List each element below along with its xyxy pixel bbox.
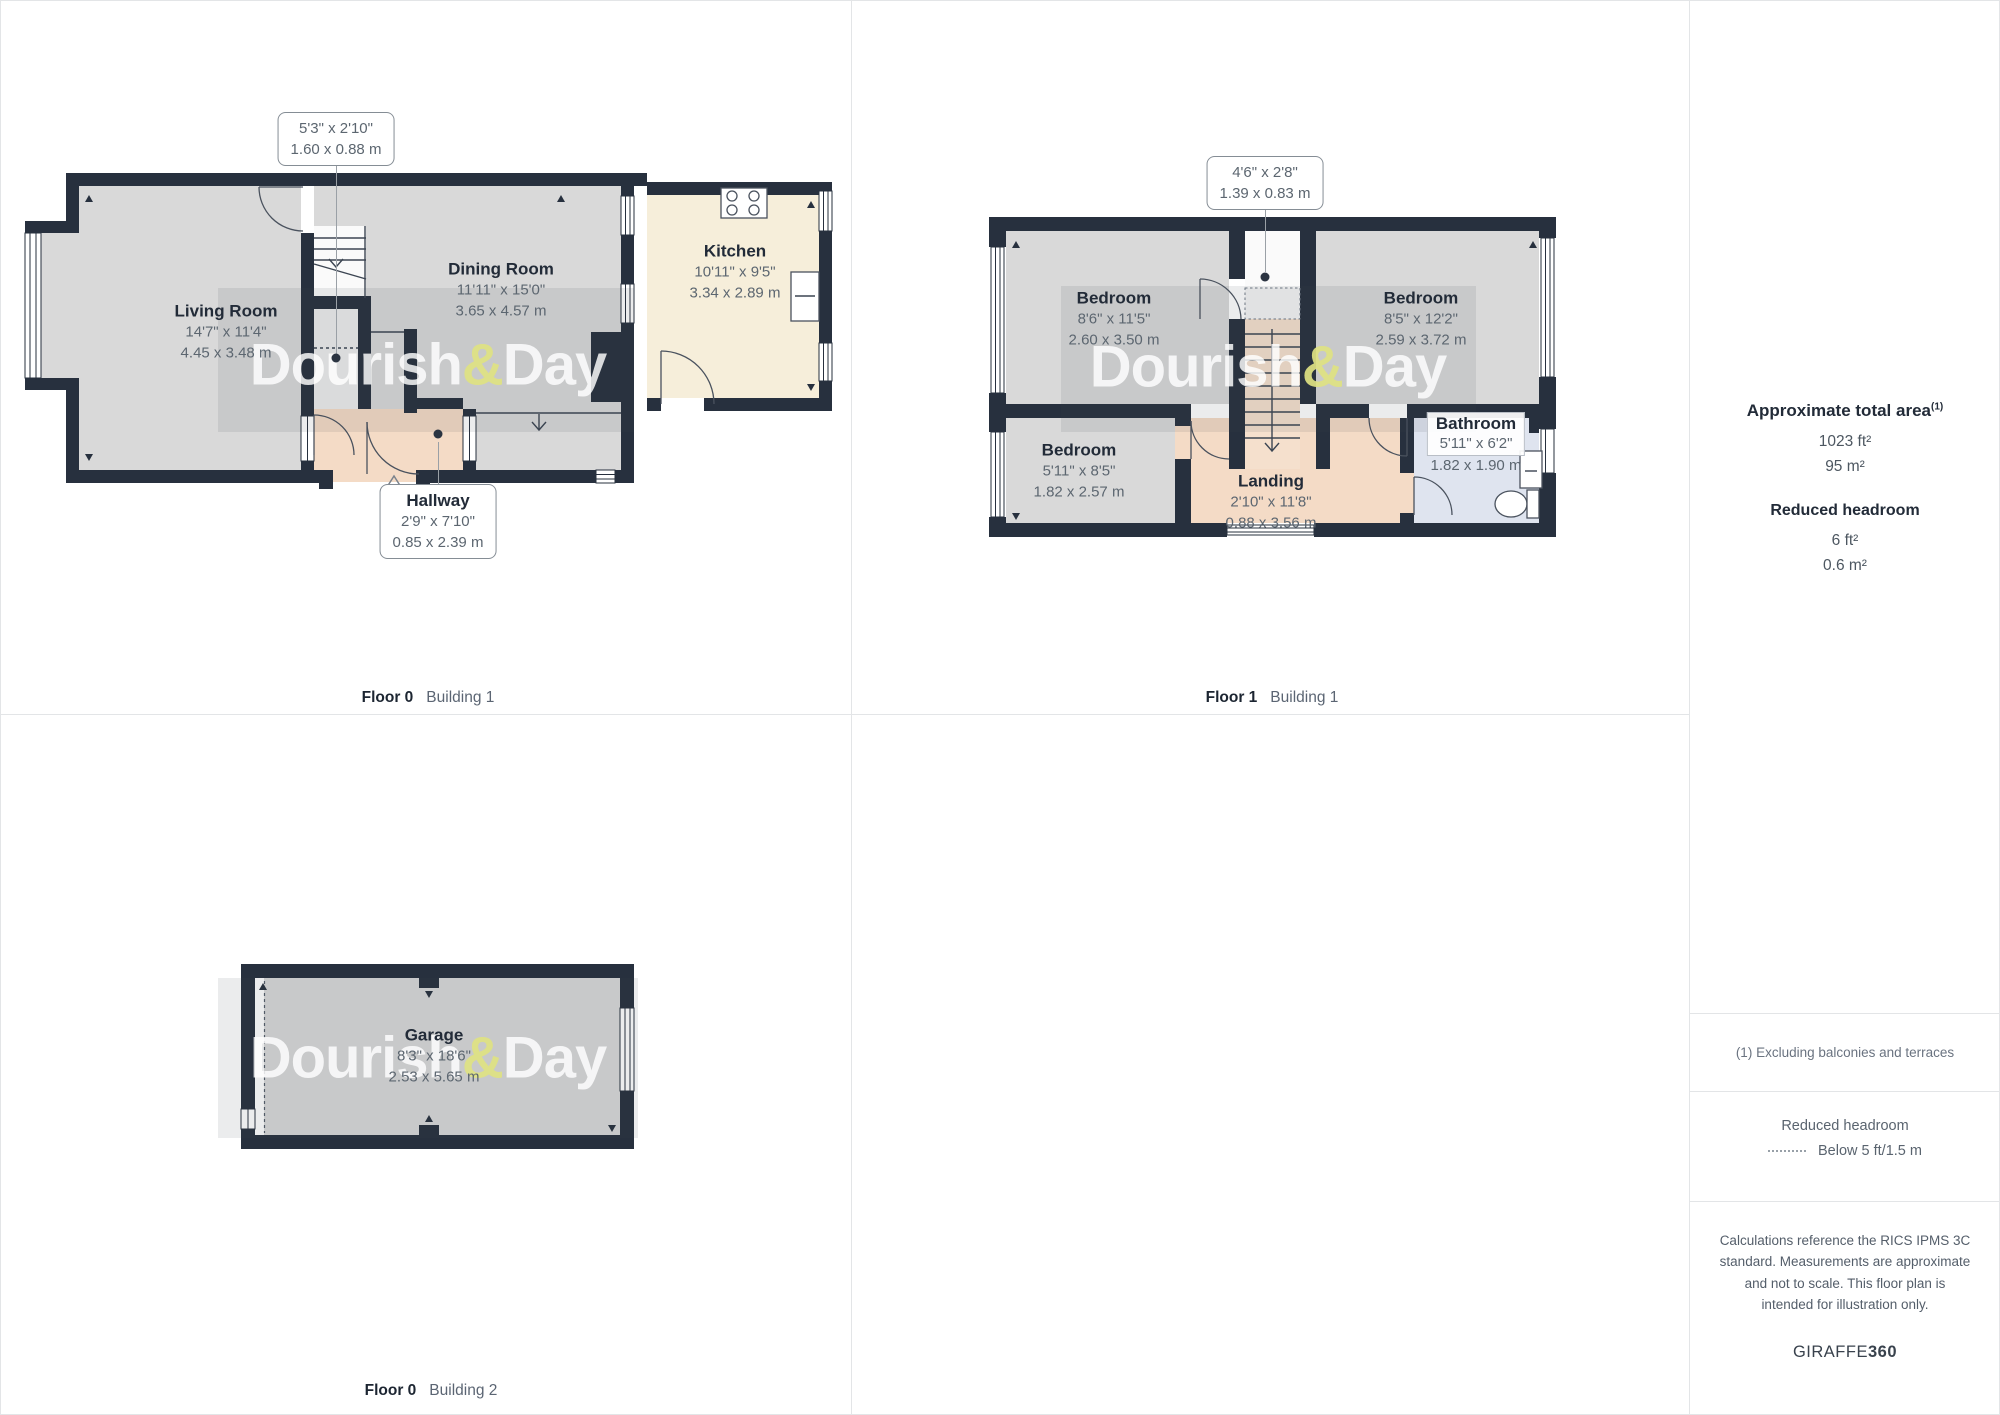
reduced-headroom-heading: Reduced headroom (1689, 502, 2000, 520)
room-label-bedroom2: Bedroom 8'5" x 12'2" 2.59 x 3.72 m (1376, 288, 1467, 351)
room-label-living-room: Living Room 14'7" x 11'4" 4.45 x 3.48 m (175, 301, 278, 364)
room-label-dining-room: Dining Room 11'11" x 15'0" 3.65 x 4.57 m (448, 259, 554, 322)
summary-sidebar: Approximate total area(1) 1023 ft² 95 m²… (1689, 1, 2000, 1415)
footnote: (1) Excluding balconies and terraces (1689, 1014, 2000, 1091)
total-area-block: Approximate total area(1) 1023 ft² 95 m²… (1689, 401, 2000, 582)
disclaimer-block: Calculations reference the RICS IPMS 3C … (1689, 1202, 2000, 1362)
caption-floor1-building1: Floor 1 Building 1 (1206, 689, 1339, 707)
callout-overstairs-cupboard: 4'6" x 2'8" 1.39 x 0.83 m (1207, 156, 1324, 210)
callout-hallway: Hallway 2'9" x 7'10" 0.85 x 2.39 m (380, 484, 497, 559)
leader-dot (332, 354, 341, 363)
leader-line (1265, 208, 1266, 272)
leader-line (336, 164, 337, 354)
giraffe360-logo: GIRAFFE360 (1689, 1343, 2000, 1362)
room-label-landing: Landing 2'10" x 11'8" 0.88 x 3.56 m (1226, 471, 1317, 534)
leader-line (438, 442, 439, 484)
divider (1689, 1013, 2000, 1014)
divider (851, 1, 852, 1415)
legend-block: Reduced headroom Below 5 ft/1.5 m (1689, 1092, 2000, 1201)
bay-window-recess (41, 233, 79, 378)
leader-dot (1261, 273, 1270, 282)
stair-head-area (1245, 231, 1300, 288)
watermark-logo: Dourish&Day (250, 332, 606, 399)
toilet-icon (1495, 491, 1527, 517)
leader-dot (434, 430, 443, 439)
disclaimer-text: Calculations reference the RICS IPMS 3C … (1718, 1230, 1972, 1315)
divider (1689, 1, 1690, 1415)
reduced-headroom-metric: 0.6 m² (1689, 557, 2000, 575)
legend-title: Reduced headroom (1689, 1118, 2000, 1134)
floorplan-document: Dourish&Day Dourish&Day Dourish&Day Livi… (0, 0, 2000, 1415)
caption-floor0-building2: Floor 0 Building 2 (365, 1382, 498, 1400)
legend-row: Below 5 ft/1.5 m (1689, 1143, 2000, 1159)
divider (1689, 1091, 2000, 1092)
room-label-garage: Garage 8'3" x 18'6" 2.53 x 5.65 m (389, 1025, 480, 1088)
room-label-bathroom: Bathroom 5'11" x 6'2" 1.82 x 1.90 m (1427, 412, 1525, 476)
divider (1, 714, 1689, 715)
total-area-heading: Approximate total area(1) (1689, 401, 2000, 421)
reduced-headroom-dashed-line-icon (1768, 1150, 1806, 1152)
total-area-imperial: 1023 ft² (1689, 433, 2000, 451)
total-area-metric: 95 m² (1689, 458, 2000, 476)
callout-understairs-cupboard: 5'3" x 2'10" 1.60 x 0.88 m (278, 112, 395, 166)
room-label-kitchen: Kitchen 10'11" x 9'5" 3.34 x 2.89 m (690, 241, 781, 304)
reduced-headroom-imperial: 6 ft² (1689, 532, 2000, 550)
room-label-bedroom3: Bedroom 5'11" x 8'5" 1.82 x 2.57 m (1034, 440, 1125, 503)
room-label-bedroom1: Bedroom 8'6" x 11'5" 2.60 x 3.50 m (1069, 288, 1160, 351)
caption-floor0-building1: Floor 0 Building 1 (362, 689, 495, 707)
divider (1689, 1201, 2000, 1202)
